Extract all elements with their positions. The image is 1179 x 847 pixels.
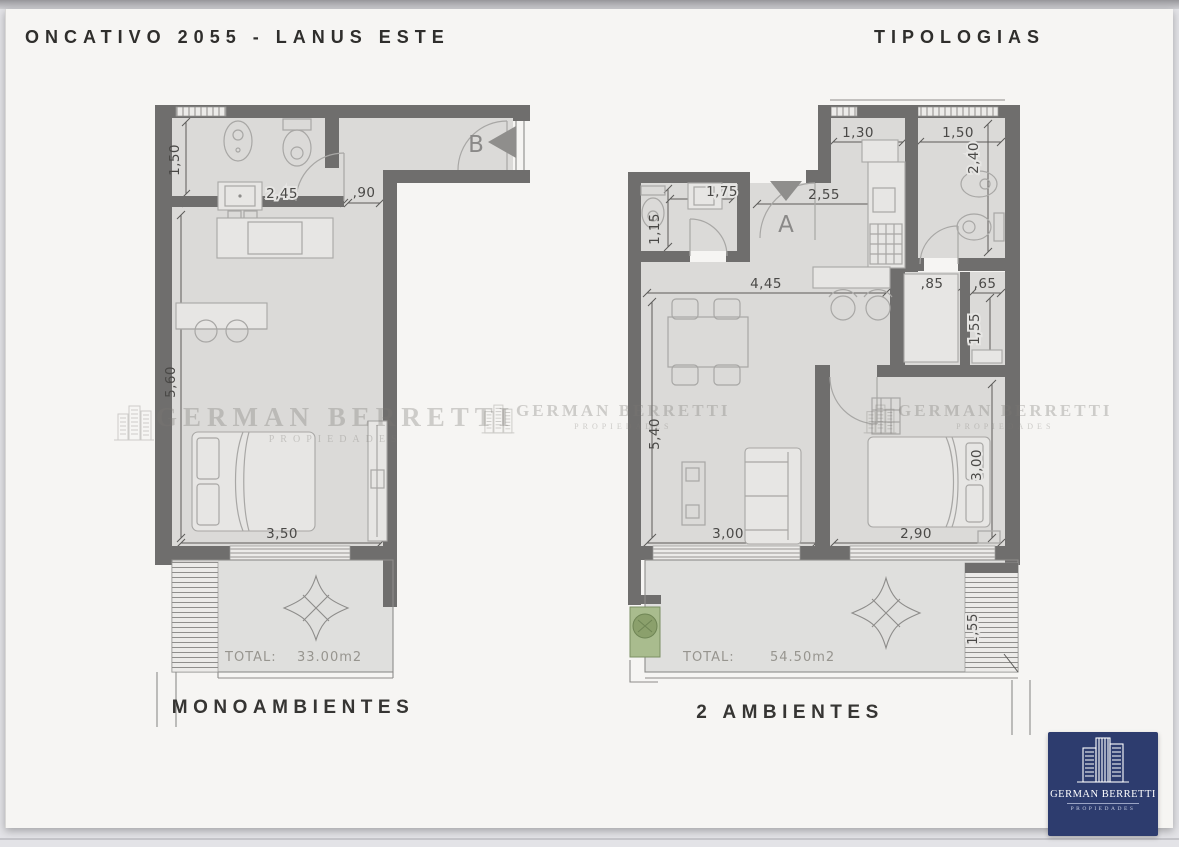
dim-stair-length: 1,55 xyxy=(965,613,981,645)
dim-toilette-length: 1,15 xyxy=(647,213,663,245)
brand-buildings-icon xyxy=(1071,732,1135,788)
mono-total-label: TOTAL: xyxy=(224,650,277,665)
brand-subtitle: PROPIEDADES xyxy=(1071,806,1136,812)
dim-bath-length: 2,45 xyxy=(266,186,298,202)
dim-pass-width: ,85 xyxy=(921,276,944,292)
mono-plan-title: MONOAMBIENTES xyxy=(172,697,415,718)
floor-plan-sheet: ONCATIVO 2055 - LANUS ESTE TIPOLOGIAS xyxy=(0,0,1179,847)
closet-shelf xyxy=(972,350,1002,363)
mono-kitchen-counter xyxy=(217,218,333,258)
sheet-bottom-edge xyxy=(0,838,1179,840)
brand-logo: GERMAN BERRETTI PROPIEDADES xyxy=(1048,732,1158,836)
sofa-icon xyxy=(745,448,801,544)
entrance-label-a: A xyxy=(778,212,794,238)
dim-living-width-bottom: 3,00 xyxy=(712,526,744,542)
dim-bath-width2: 1,50 xyxy=(942,125,974,141)
entrance-label-b: B xyxy=(468,132,484,158)
page-title: ONCATIVO 2055 - LANUS ESTE xyxy=(25,27,450,48)
wardrobe-icon xyxy=(368,421,387,541)
dim-toilette-width: 1,75 xyxy=(706,184,738,200)
page-subtitle: TIPOLOGIAS xyxy=(874,27,1045,48)
dim-living-width: 4,45 xyxy=(750,276,782,292)
dos-total-label: TOTAL: xyxy=(682,650,735,665)
bed-icon xyxy=(192,432,315,531)
dim-bath-length2: 2,40 xyxy=(966,142,982,174)
plan-2-ambientes: 1,30 1,50 2,40 1,15 1,75 2,55 4,45 ,85 ,… xyxy=(615,95,1035,740)
dim-room-width: 3,50 xyxy=(266,526,298,542)
mono-balcony-window xyxy=(230,546,350,560)
dim-kitchen-width: 1,30 xyxy=(842,125,874,141)
brand-name: GERMAN BERRETTI xyxy=(1050,789,1156,800)
dim-bath-width: 1,50 xyxy=(167,144,183,176)
mono-total-value: 33.00m2 xyxy=(297,650,362,665)
dim-bedroom-width: 2,90 xyxy=(900,526,932,542)
dim-closet-width: ,65 xyxy=(974,276,997,292)
dos-plan-title: 2 AMBIENTES xyxy=(696,702,884,723)
dim-hall-width: ,90 xyxy=(353,185,376,201)
dos-total-value: 54.50m2 xyxy=(770,650,835,665)
dim-room-length: 5,60 xyxy=(163,366,179,398)
dim-bedroom-length: 3,00 xyxy=(969,449,985,481)
dim-closet-length: 1,55 xyxy=(967,313,983,345)
dim-living-length: 5,40 xyxy=(647,418,663,450)
dim-entry-width: 2,55 xyxy=(808,187,840,203)
brand-rule xyxy=(1067,803,1139,804)
plan-monoambiente: 1,50 2,45 ,90 5,60 3,50 B TOTAL: 33.00m2… xyxy=(120,95,540,740)
sheet-top-edge xyxy=(0,0,1179,9)
